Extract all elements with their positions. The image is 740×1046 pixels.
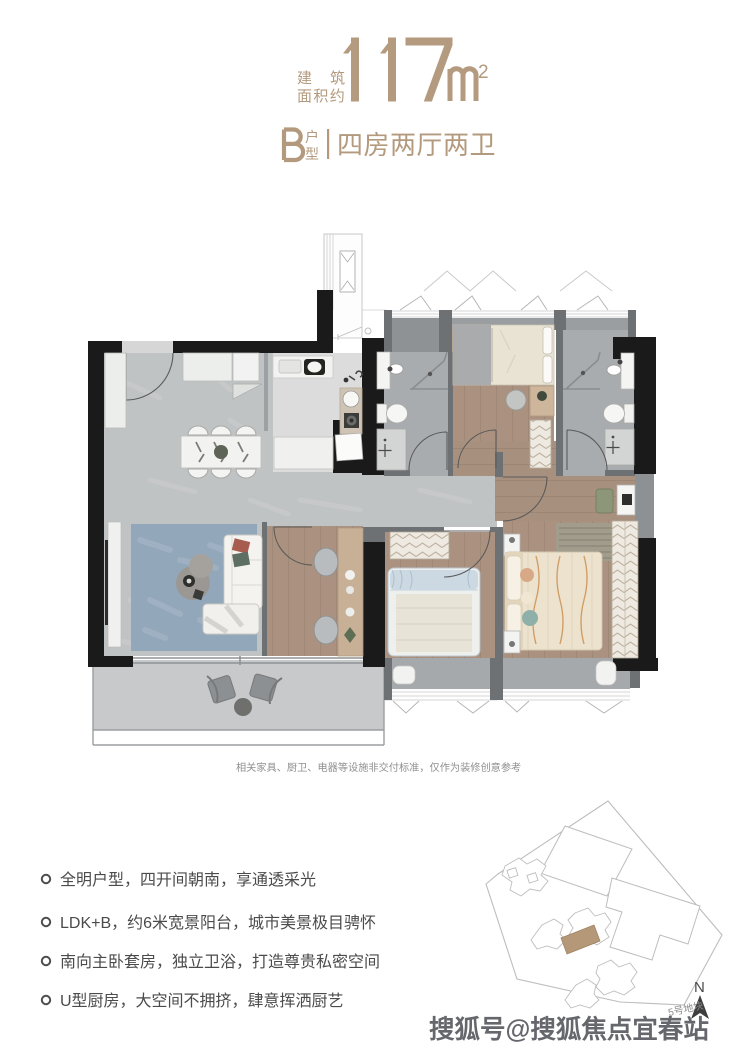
- svg-text:N: N: [694, 979, 705, 996]
- svg-text:2: 2: [478, 62, 489, 83]
- svg-text:U型厨房，大空间不拥挤，肆意挥洒厨艺: U型厨房，大空间不拥挤，肆意挥洒厨艺: [60, 991, 344, 1010]
- svg-text:型: 型: [305, 146, 319, 162]
- svg-text:LDK+B，约6米宽景阳台，城市美景极目骋怀: LDK+B，约6米宽景阳台，城市美景极目骋怀: [60, 914, 376, 932]
- svg-text:面积约: 面积约: [297, 88, 346, 105]
- svg-text:南向主卧套房，独立卫浴，打造尊贵私密空间: 南向主卧套房，独立卫浴，打造尊贵私密空间: [60, 953, 380, 971]
- svg-text:搜狐号@搜狐焦点宜春站: 搜狐号@搜狐焦点宜春站: [429, 1015, 709, 1044]
- svg-text:户: 户: [305, 129, 319, 145]
- svg-text:四房两厅两卫: 四房两厅两卫: [337, 130, 496, 160]
- svg-text:全明户型，四开间朝南，享通透采光: 全明户型，四开间朝南，享通透采光: [60, 871, 316, 889]
- svg-text:相关家具、厨卫、电器等设施非交付标准，仅作为装修创意参考: 相关家具、厨卫、电器等设施非交付标准，仅作为装修创意参考: [236, 761, 521, 774]
